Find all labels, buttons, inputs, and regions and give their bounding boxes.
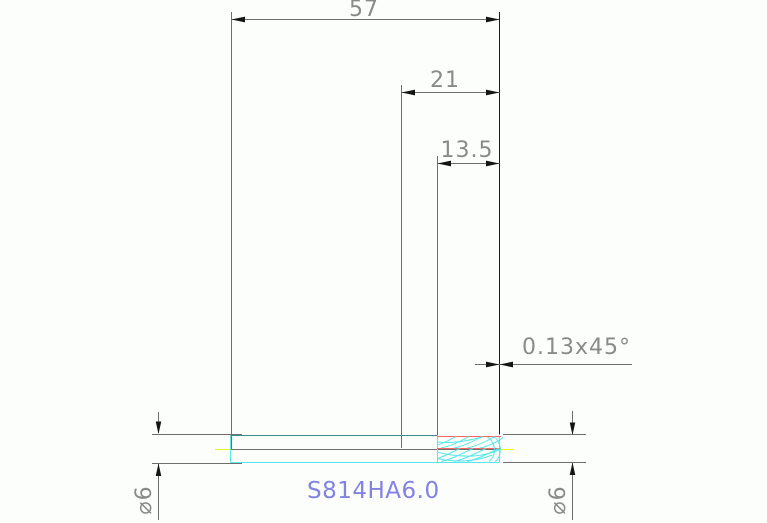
dim-text-chamfer: 0.13x45° <box>522 335 631 361</box>
dim-text-diameter-right: ⌀6 <box>546 478 572 522</box>
cad-linework <box>0 0 767 523</box>
cad-drawing-canvas: 57 21 13.5 0.13x45° ⌀6 ⌀6 S814HA6.0 <box>0 0 767 523</box>
dia-dim-right-arrows <box>570 423 576 476</box>
dim-text-diameter-left: ⌀6 <box>132 478 158 522</box>
dim-flute-length <box>438 156 500 435</box>
dim-text-overall-length: 57 <box>334 0 394 23</box>
dia-dim-left-arrows <box>156 422 162 477</box>
part-number-label: S814HA6.0 <box>307 477 440 505</box>
dim-text-upper-section: 21 <box>415 68 475 94</box>
dia-dim-left <box>152 412 242 520</box>
dim-text-flute-length: 13.5 <box>427 138 507 164</box>
